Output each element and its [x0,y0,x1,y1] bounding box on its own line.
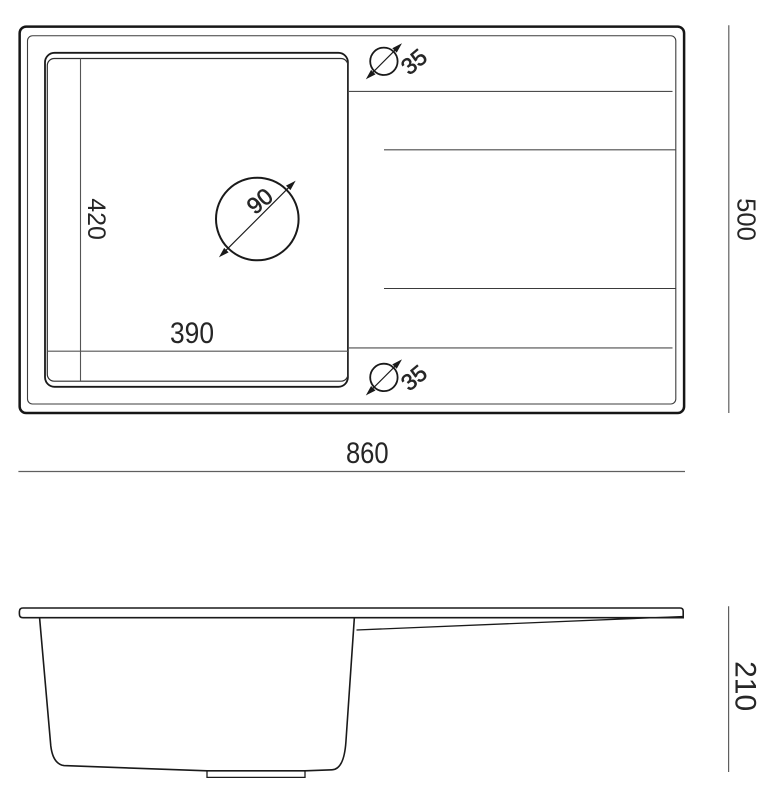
svg-text:860: 860 [346,437,389,470]
svg-text:420: 420 [82,198,110,240]
svg-text:500: 500 [732,198,760,241]
svg-text:390: 390 [170,317,214,350]
svg-text:210: 210 [729,661,762,711]
